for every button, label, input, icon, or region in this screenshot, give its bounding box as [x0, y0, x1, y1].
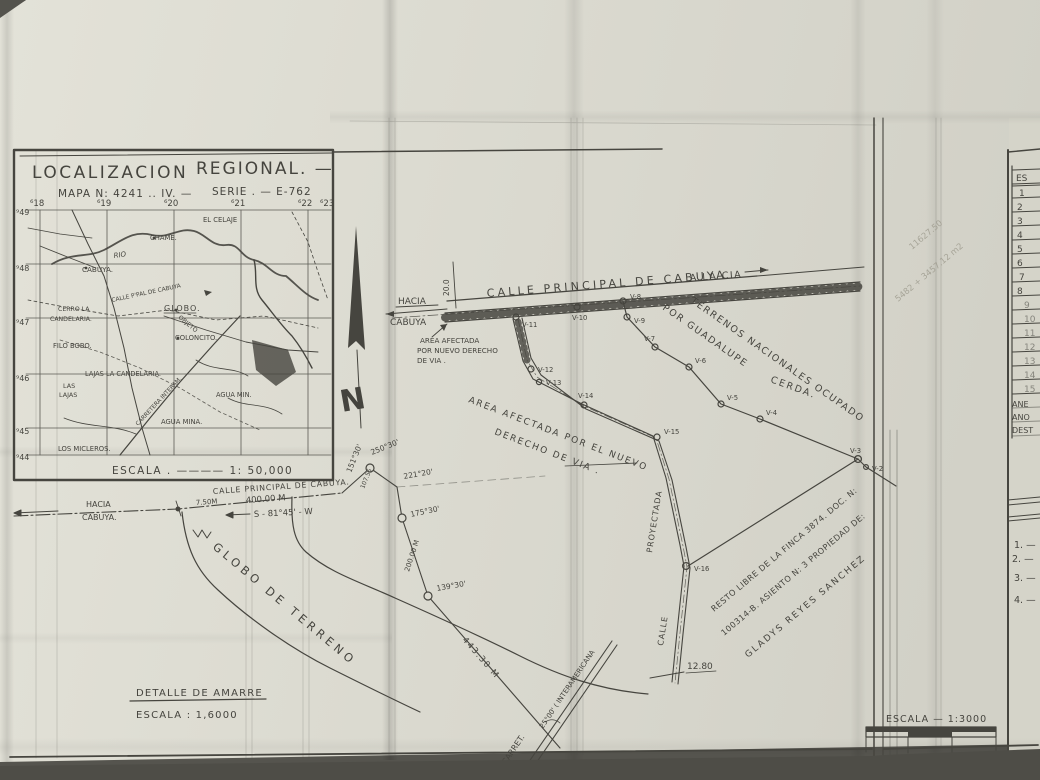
photo-of-survey-map: LOCALIZACION REGIONAL. — MAPA N: 4241 ..…	[0, 0, 1040, 780]
detail-hacia: HACIA	[86, 500, 111, 509]
grid-left-4: ⁹45	[16, 427, 29, 436]
right-row-7: 7	[1019, 273, 1025, 283]
grid-top-5: ⁶23	[320, 199, 334, 209]
place-cerro-la: CERRO LA	[58, 306, 90, 313]
place-las: LAS	[63, 382, 75, 390]
inset-title-1: LOCALIZACION	[32, 163, 188, 183]
grid-top-3: ⁶21	[231, 199, 245, 209]
grid-left-2: ⁹47	[16, 318, 29, 327]
grid-top-0: ⁶18	[30, 199, 44, 209]
right-row-15: 15	[1024, 385, 1035, 395]
right-row-6: 6	[1017, 259, 1023, 269]
apertura-line-2: POR NUEVO DERECHO	[417, 346, 498, 355]
place-el-celaje: EL CELAJE	[203, 216, 237, 224]
dim-1280-label: 12.80	[687, 662, 713, 672]
detail-cabuya: CABUYA.	[82, 513, 117, 522]
inset-title-2: REGIONAL. —	[196, 159, 334, 179]
right-row-10: 10	[1024, 315, 1036, 325]
place-lajas: LAJAS	[59, 391, 77, 399]
right-row-11: 11	[1024, 329, 1035, 339]
station-v8-label: V-8	[630, 293, 641, 301]
place-agua-mina-1: AGUA MIN.	[216, 391, 252, 399]
inset-scale-label: ESCALA . ———— 1: 50,000	[112, 465, 293, 477]
station-v10-label: V-10	[572, 314, 587, 322]
right-row-2: 2	[1017, 203, 1023, 213]
station-v12-label: V-12	[538, 366, 553, 374]
station-v2-label: V-2	[872, 465, 883, 473]
station-v7-label: V-7	[644, 335, 655, 343]
right-item-2: 2. —	[1012, 554, 1034, 565]
grid-left-0: ⁹49	[16, 208, 29, 217]
right-row-3: 3	[1017, 217, 1023, 227]
right-note-1: ANE	[1012, 400, 1029, 409]
place-lajas-candelaria: LAJAS LA CANDELARIA.	[85, 370, 161, 378]
place-cabuya: CABUYA.	[82, 265, 113, 274]
station-v14-label: V-14	[578, 392, 593, 400]
survey-map-svg: LOCALIZACION REGIONAL. — MAPA N: 4241 ..…	[0, 0, 1040, 780]
right-row-8: 8	[1017, 287, 1023, 297]
station-v16-label: V-16	[694, 565, 709, 573]
grid-top-1: ⁶19	[97, 199, 111, 209]
right-row-14: 14	[1024, 371, 1036, 381]
place-candelaria: CANDELARIA.	[50, 316, 92, 323]
detail-scale: ESCALA : 1,6000	[136, 710, 238, 721]
right-table-header: ES	[1016, 174, 1028, 184]
station-v15-label: V-15	[664, 428, 679, 436]
place-globo: GLOBO.	[164, 304, 201, 313]
cabuya-label: CABUYA	[390, 318, 427, 328]
detail-dist-750: 7.50M	[196, 498, 218, 507]
place-agua-mina-2: AGUA MINA.	[161, 418, 202, 426]
right-item-3: 3. —	[1014, 573, 1036, 584]
place-filo-bobo: FILO BOBO.	[53, 342, 92, 350]
place-chame: CHAME.	[150, 234, 177, 242]
station-v5-label: V-5	[727, 394, 738, 402]
place-coloncito: COLONCITO.	[175, 334, 217, 342]
grid-top-4: ⁶22	[298, 199, 312, 209]
station-v6-label: V-6	[695, 357, 706, 365]
right-row-4: 4	[1017, 231, 1023, 241]
right-item-4: 4. —	[1014, 595, 1036, 606]
right-item-1: 1. —	[1014, 540, 1036, 551]
apertura-line-3: DE VIA .	[417, 356, 446, 365]
right-row-9: 9	[1024, 301, 1030, 311]
right-note-3: DEST	[1012, 426, 1033, 435]
grid-top-2: ⁶20	[164, 199, 178, 209]
apertura-line-1: AREA AFECTADA	[420, 336, 479, 345]
right-note-2: ANO	[1012, 413, 1030, 422]
detail-title: DETALLE DE AMARRE	[136, 688, 263, 699]
right-row-13: 13	[1024, 357, 1035, 367]
station-v3-label: V-3	[850, 447, 861, 455]
grid-left-3: ⁹46	[16, 374, 29, 383]
grid-left-5: ⁹44	[16, 453, 29, 462]
right-row-12: 12	[1024, 343, 1035, 353]
station-v11-label: V-11	[522, 321, 537, 329]
scale-bar-label: ESCALA — 1:3000	[886, 714, 987, 725]
place-los-micleros: LOS MICLEROS.	[58, 445, 111, 453]
right-row-1: 1	[1019, 189, 1025, 199]
station-v4-label: V-4	[766, 409, 777, 417]
offset-200-label: 20.0	[442, 279, 451, 296]
adjacent-sheet	[1009, 118, 1040, 758]
station-v9-label: V-9	[634, 317, 645, 325]
right-row-5: 5	[1017, 245, 1023, 255]
grid-left-1: ⁹48	[16, 264, 29, 273]
inset-serie: SERIE . — E-762	[212, 186, 312, 198]
station-v13-label: V-13	[546, 379, 561, 387]
